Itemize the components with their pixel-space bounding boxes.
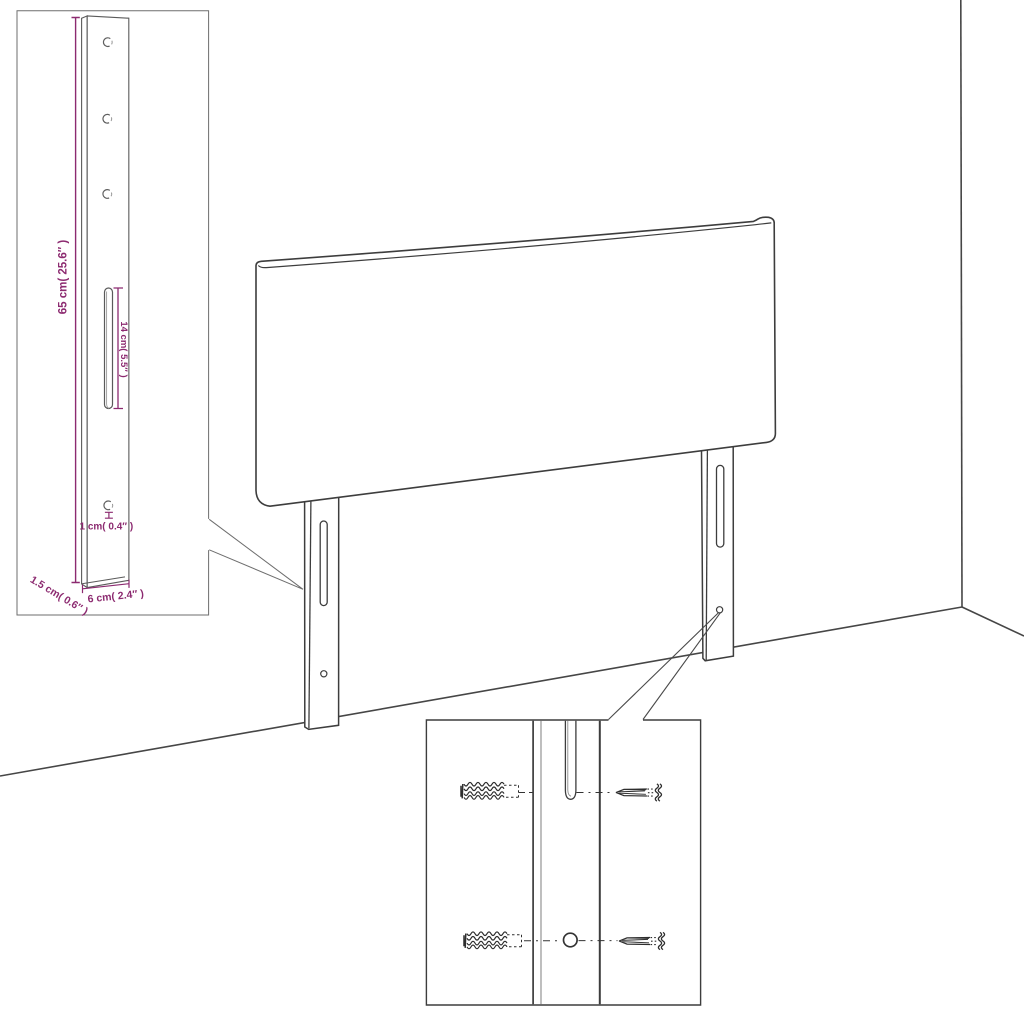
svg-text:6 cm( 2.4″ ): 6 cm( 2.4″ ): [87, 588, 144, 606]
svg-text:14 cm( 5.5″ ): 14 cm( 5.5″ ): [118, 321, 129, 377]
svg-text:1.5 cm( 0.6″ ): 1.5 cm( 0.6″ ): [28, 574, 90, 618]
svg-text:1 cm( 0.4″ ): 1 cm( 0.4″ ): [80, 522, 134, 533]
svg-text:65 cm( 25.6″ ): 65 cm( 25.6″ ): [58, 240, 70, 315]
